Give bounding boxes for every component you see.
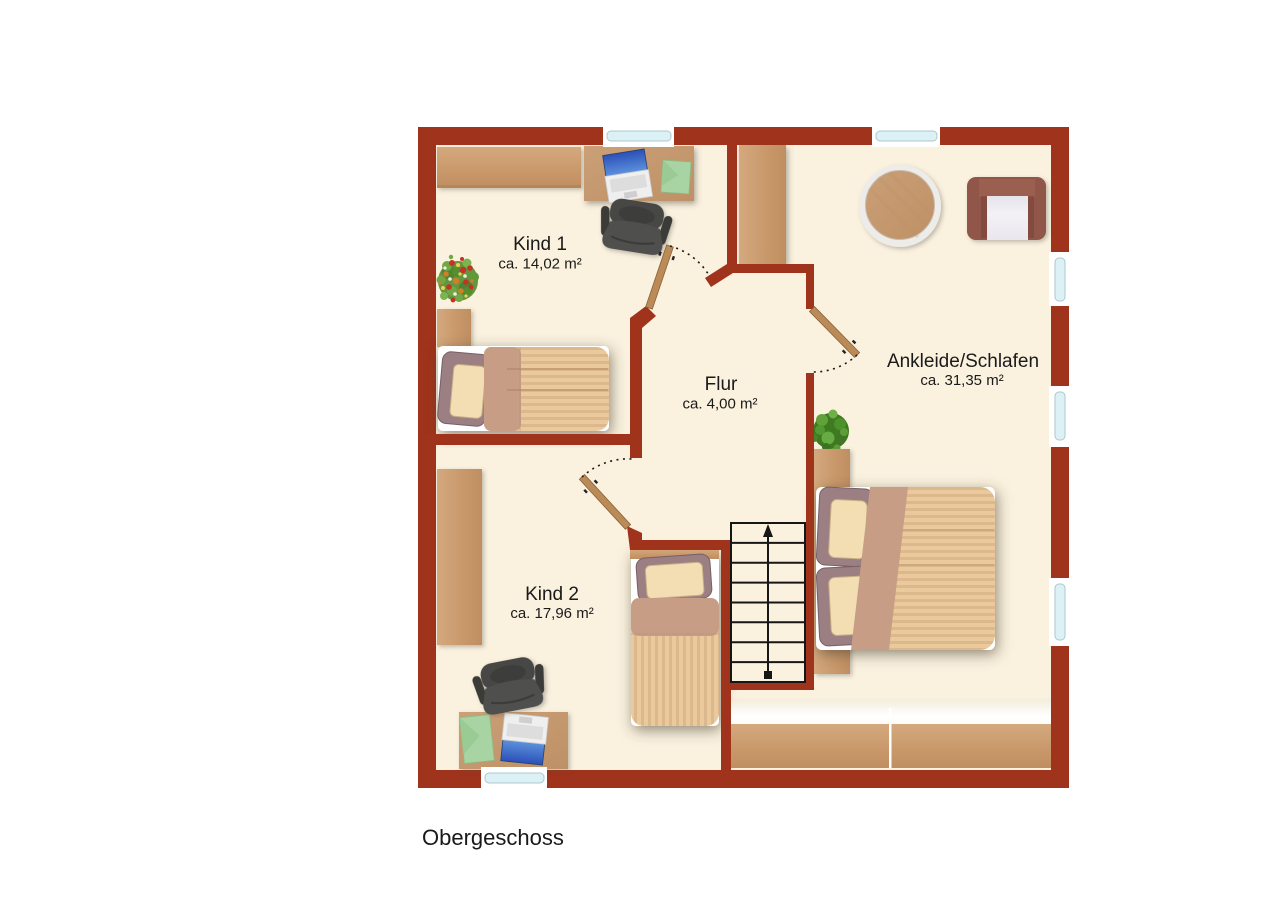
svg-text:ca. 4,00 m²: ca. 4,00 m²: [682, 396, 757, 413]
svg-text:ca. 14,02 m²: ca. 14,02 m²: [498, 256, 581, 273]
svg-text:Kind 2: Kind 2: [525, 584, 579, 605]
svg-text:Flur: Flur: [705, 374, 738, 395]
svg-text:Kind 1: Kind 1: [513, 234, 567, 255]
svg-text:Ankleide/Schlafen: Ankleide/Schlafen: [887, 351, 1039, 372]
svg-text:Obergeschoss: Obergeschoss: [422, 825, 564, 850]
svg-text:ca. 31,35 m²: ca. 31,35 m²: [920, 372, 1003, 389]
svg-text:ca. 17,96 m²: ca. 17,96 m²: [510, 605, 593, 622]
